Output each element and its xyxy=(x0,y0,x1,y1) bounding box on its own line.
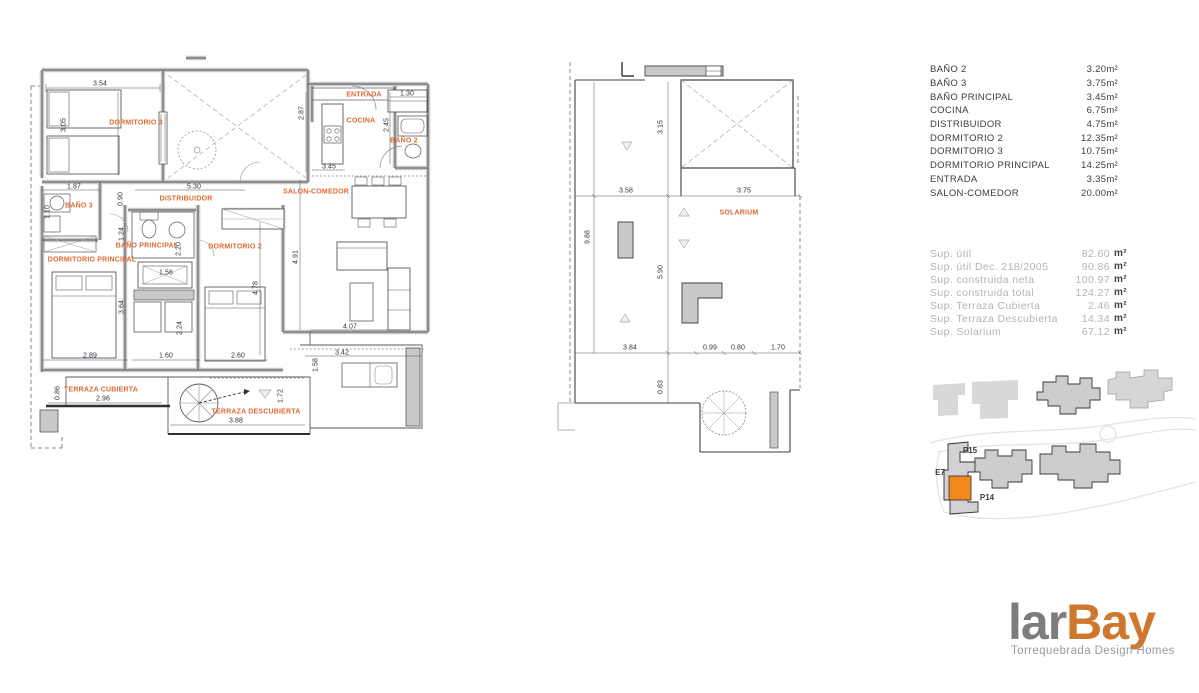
surface-row: Sup. Terraza Descubierta 14.34 m² xyxy=(930,312,1136,325)
room-area-value: 10.75m² xyxy=(1081,146,1118,157)
room-name: DORMITORIO PRINCIPAL xyxy=(930,160,1050,171)
room-area-value: 3.35m² xyxy=(1087,174,1118,185)
site-plan-drawing xyxy=(930,370,1196,519)
room-area-value: 4.75m² xyxy=(1087,119,1118,130)
room-area-value: 14.25m² xyxy=(1081,160,1118,171)
room-area-value: 6.75m² xyxy=(1087,105,1118,116)
plan1-drawing xyxy=(31,58,428,448)
surface-label: Sup. construida total xyxy=(930,287,1062,299)
room-name: DORMITORIO 2 xyxy=(930,133,1003,144)
surface-unit: m² xyxy=(1114,274,1136,285)
highlighted-unit xyxy=(949,476,971,500)
surface-unit: m² xyxy=(1114,313,1136,324)
room-name: SALON-COMEDOR xyxy=(930,188,1019,199)
page: DORMITORIO 3 BAÑO 3 DISTRIBUIDOR BAÑO PR… xyxy=(0,0,1199,693)
area-table-row: DORMITORIO PRINCIPAL 14.25m² xyxy=(930,159,1118,173)
logo-lar: lar xyxy=(1008,594,1066,650)
surface-row: Sup. Solarium 67.12 m² xyxy=(930,325,1136,338)
surface-label: Sup. Terraza Cubierta xyxy=(930,300,1062,312)
surface-value: 82.60 xyxy=(1062,248,1110,260)
surface-label: Sup. útil Dec. 218/2005 xyxy=(930,261,1062,273)
surface-value: 90.86 xyxy=(1062,261,1110,273)
surface-value: 100.97 xyxy=(1062,274,1110,286)
room-name: COCINA xyxy=(930,105,969,116)
surface-value: 67.12 xyxy=(1062,326,1110,338)
surface-label: Sup. construida neta xyxy=(930,274,1062,286)
room-name: BAÑO PRINCIPAL xyxy=(930,92,1013,103)
room-area-value: 3.20m² xyxy=(1087,64,1118,75)
room-name: BAÑO 2 xyxy=(930,64,967,75)
area-table-row: BAÑO PRINCIPAL 3.45m² xyxy=(930,90,1118,104)
logo-bay: Bay xyxy=(1066,594,1155,650)
area-table-row: COCINA 6.75m² xyxy=(930,104,1118,118)
area-table-row: BAÑO 3 3.75m² xyxy=(930,77,1118,91)
surface-unit: m² xyxy=(1114,248,1136,259)
surface-label: Sup. Terraza Descubierta xyxy=(930,313,1062,325)
surface-label: Sup. Solarium xyxy=(930,326,1062,338)
surface-unit: m² xyxy=(1114,287,1136,298)
surface-value: 14.34 xyxy=(1062,313,1110,325)
surface-summary-table: Sup. útil 82.60 m² Sup. útil Dec. 218/20… xyxy=(930,247,1136,338)
area-table-row: BAÑO 2 3.20m² xyxy=(930,63,1118,77)
logo: larBay Torrequebrada Design Homes xyxy=(1008,596,1193,657)
surface-row: Sup. construida neta 100.97 m² xyxy=(930,273,1136,286)
room-name: ENTRADA xyxy=(930,174,978,185)
room-area-value: 3.75m² xyxy=(1087,78,1118,89)
room-area-value: 12.35m² xyxy=(1081,133,1118,144)
area-table-row: SALON-COMEDOR 20.00m² xyxy=(930,186,1118,200)
plan2-drawing xyxy=(558,62,802,452)
area-table-row: DORMITORIO 2 12.35m² xyxy=(930,131,1118,145)
logo-wordmark: larBay xyxy=(1008,596,1193,649)
surface-unit: m² xyxy=(1114,261,1136,272)
surface-unit: m² xyxy=(1114,326,1136,337)
surface-row: Sup. Terraza Cubierta 2.46 m² xyxy=(930,299,1136,312)
area-table-row: ENTRADA 3.35m² xyxy=(930,173,1118,187)
room-area-table: BAÑO 2 3.20m² BAÑO 3 3.75m² BAÑO PRINCIP… xyxy=(930,63,1118,200)
surface-value: 2.46 xyxy=(1062,300,1110,312)
surface-row: Sup. útil Dec. 218/2005 90.86 m² xyxy=(930,260,1136,273)
logo-tagline: Torrequebrada Design Homes xyxy=(1011,645,1193,657)
area-table-row: DORMITORIO 3 10.75m² xyxy=(930,145,1118,159)
room-area-value: 20.00m² xyxy=(1081,188,1118,199)
surface-unit: m² xyxy=(1114,300,1136,311)
area-table-row: DISTRIBUIDOR 4.75m² xyxy=(930,118,1118,132)
room-name: DORMITORIO 3 xyxy=(930,146,1003,157)
surface-row: Sup. útil 82.60 m² xyxy=(930,247,1136,260)
surface-label: Sup. útil xyxy=(930,248,1062,260)
room-area-value: 3.45m² xyxy=(1087,92,1118,103)
room-name: BAÑO 3 xyxy=(930,78,967,89)
surface-row: Sup. construida total 124.27 m² xyxy=(930,286,1136,299)
surface-value: 124.27 xyxy=(1062,287,1110,299)
room-name: DISTRIBUIDOR xyxy=(930,119,1002,130)
